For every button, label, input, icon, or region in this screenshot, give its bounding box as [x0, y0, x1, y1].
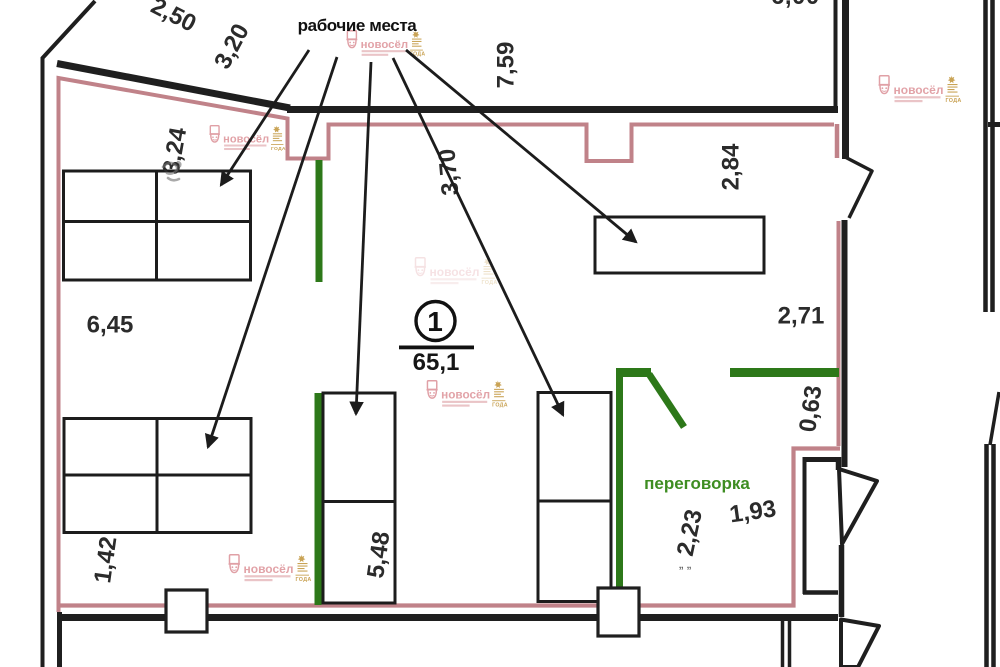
svg-text:1: 1	[427, 306, 443, 337]
svg-text:2,84: 2,84	[717, 143, 744, 190]
svg-text:6,00: 6,00	[771, 0, 820, 10]
svg-text:переговорка: переговорка	[644, 474, 750, 493]
svg-text:2,71: 2,71	[778, 302, 825, 329]
svg-text:7,59: 7,59	[492, 42, 519, 89]
svg-text:65,1: 65,1	[413, 349, 460, 376]
svg-text:рабочие места: рабочие места	[298, 16, 418, 35]
svg-text:6,45: 6,45	[87, 311, 134, 338]
svg-text:„„: „„	[679, 556, 695, 571]
